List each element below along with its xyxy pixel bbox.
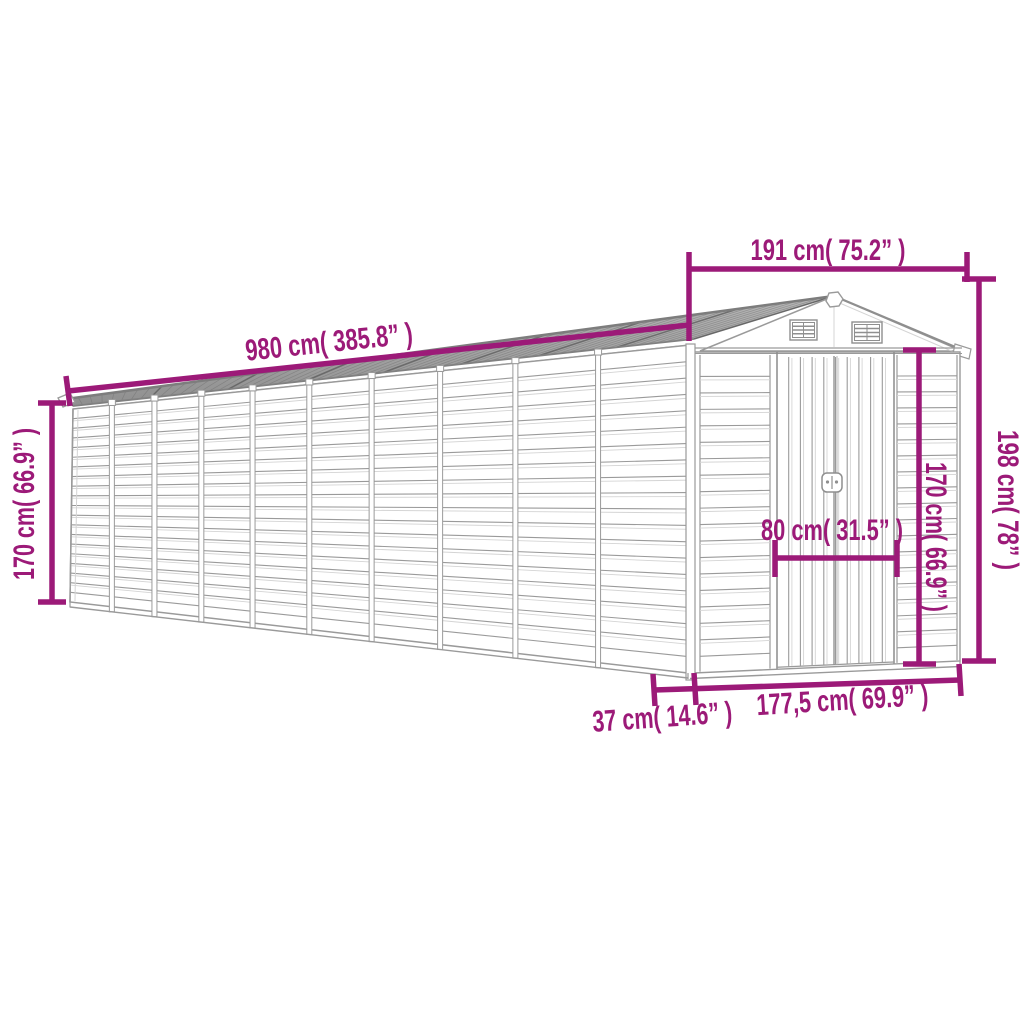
dim-label-total-height: 198 cm( 78” ) xyxy=(991,430,1024,570)
wall-post-bracket xyxy=(368,373,375,379)
wall-post xyxy=(152,401,157,617)
wall-post-bracket xyxy=(595,349,602,355)
wall-post-bracket xyxy=(512,358,519,364)
wall-post xyxy=(199,396,204,622)
dim-label-base-side-depth: 37 cm( 14.6” ) xyxy=(591,696,733,739)
dim-label-gable-width: 191 cm( 75.2” ) xyxy=(751,234,906,267)
dimension-side-wall-height: 170 cm( 66.9” ) xyxy=(8,403,66,602)
dim-label-front-height: 170 cm( 66.9” ) xyxy=(919,462,952,612)
wall-post-bracket xyxy=(108,399,115,405)
wall-post xyxy=(438,371,443,649)
dim-label-side-height: 170 cm( 66.9” ) xyxy=(8,428,41,580)
front-flank-left-slat xyxy=(700,425,770,426)
corner-post xyxy=(686,344,695,680)
door-handle-knob-left xyxy=(826,480,829,483)
wall-post-bracket xyxy=(151,395,158,401)
wall-post-bracket xyxy=(249,385,256,391)
wall-post xyxy=(369,379,374,642)
wall-post xyxy=(596,355,601,668)
apex-finial xyxy=(826,292,843,307)
door-handle-knob-right xyxy=(835,480,838,483)
dimension-total-height: 198 cm( 78” ) xyxy=(962,279,1024,661)
wall-post xyxy=(250,391,255,628)
wall-post-bracket xyxy=(306,379,313,385)
wall-post xyxy=(109,405,114,611)
wall-post-bracket xyxy=(437,365,444,371)
dim-label-door-width: 80 cm( 31.5” ) xyxy=(761,514,903,547)
wall-post xyxy=(513,364,518,659)
front-flank-right-slat-shadow xyxy=(897,427,957,428)
dim-tick-base-right xyxy=(959,664,961,696)
front-flank-right-slat xyxy=(897,423,957,424)
front-flank-right-slat xyxy=(897,439,957,440)
wall-post xyxy=(307,385,312,635)
wall-post-bracket xyxy=(198,390,205,396)
shed-dimension-diagram: 980 cm( 385.8” ) 191 cm( 75.2” ) 198 cm(… xyxy=(0,0,1024,1024)
